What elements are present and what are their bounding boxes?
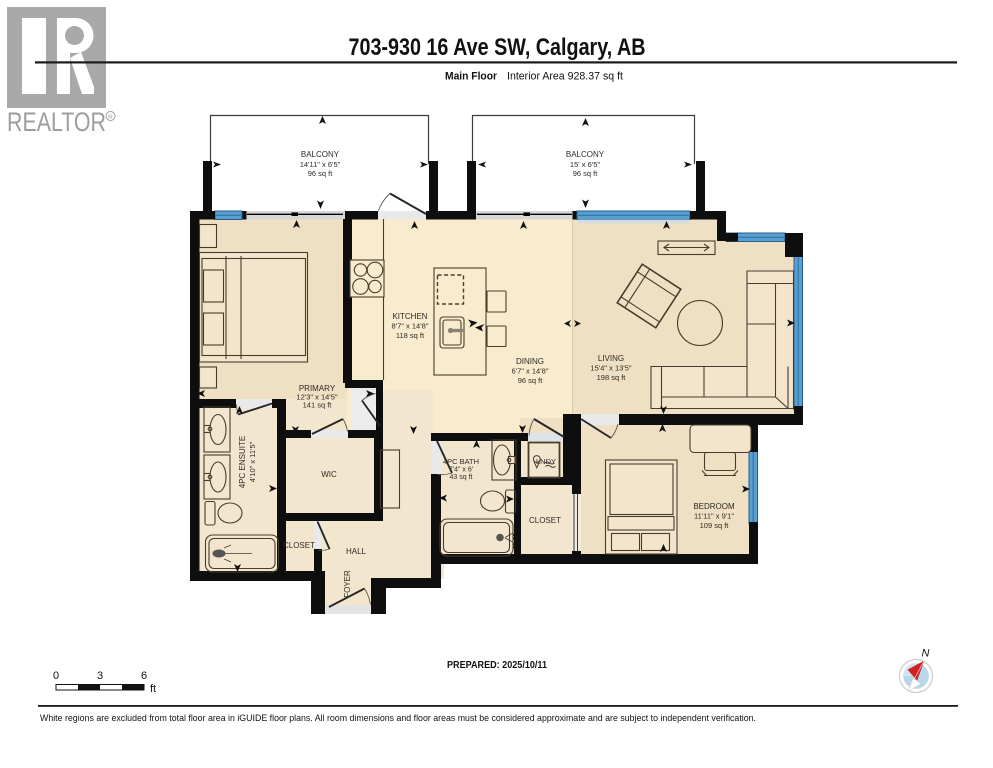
svg-text:198 sq ft: 198 sq ft	[597, 373, 627, 382]
svg-text:KITCHEN: KITCHEN	[392, 312, 427, 321]
svg-text:6: 6	[141, 670, 147, 682]
svg-text:WIC: WIC	[321, 470, 337, 479]
svg-text:15' x 6'5": 15' x 6'5"	[570, 160, 600, 169]
svg-text:4'10" x 11'5": 4'10" x 11'5"	[248, 441, 257, 482]
svg-text:REALTOR: REALTOR	[7, 107, 106, 137]
svg-text:ft: ft	[150, 683, 156, 695]
svg-text:Main Floor: Main Floor	[445, 71, 498, 83]
svg-text:96 sq ft: 96 sq ft	[518, 376, 544, 385]
svg-text:HALL: HALL	[346, 547, 367, 556]
svg-text:LIVING: LIVING	[598, 354, 624, 363]
svg-text:DINING: DINING	[516, 357, 544, 366]
svg-text:CLOSET: CLOSET	[283, 541, 315, 550]
svg-text:FOYER: FOYER	[343, 570, 352, 598]
svg-text:White regions are excluded fro: White regions are excluded from total fl…	[40, 713, 756, 724]
svg-text:BALCONY: BALCONY	[301, 150, 340, 159]
svg-text:703-930 16 Ave SW, Calgary, AB: 703-930 16 Ave SW, Calgary, AB	[349, 34, 646, 61]
svg-text:R: R	[108, 114, 113, 121]
svg-text:Interior Area 928.37 sq ft: Interior Area 928.37 sq ft	[507, 71, 623, 83]
svg-text:96 sq ft: 96 sq ft	[573, 169, 599, 178]
svg-text:109 sq ft: 109 sq ft	[700, 521, 730, 530]
svg-text:4PC BATH: 4PC BATH	[443, 457, 479, 466]
svg-text:15'4" x 13'5": 15'4" x 13'5"	[590, 364, 631, 373]
svg-text:4PC ENSUITE: 4PC ENSUITE	[238, 436, 247, 488]
svg-text:PREPARED: 2025/10/11: PREPARED: 2025/10/11	[447, 659, 547, 671]
svg-text:43 sq ft: 43 sq ft	[450, 474, 473, 481]
svg-text:7'4" x 6': 7'4" x 6'	[449, 467, 473, 474]
svg-text:96 sq ft: 96 sq ft	[308, 169, 334, 178]
svg-text:CLOSET: CLOSET	[529, 516, 561, 525]
svg-text:LNDY: LNDY	[536, 457, 556, 466]
svg-text:BALCONY: BALCONY	[566, 150, 605, 159]
svg-text:3: 3	[97, 670, 103, 682]
svg-text:11'11" x 9'1": 11'11" x 9'1"	[694, 512, 734, 521]
svg-text:118 sq ft: 118 sq ft	[396, 331, 425, 340]
svg-text:6'7" x 14'8": 6'7" x 14'8"	[512, 367, 549, 376]
svg-text:8'7" x 14'8": 8'7" x 14'8"	[392, 322, 429, 331]
svg-text:N: N	[922, 648, 930, 660]
svg-text:BEDROOM: BEDROOM	[693, 502, 735, 511]
svg-text:14'11" x 6'5": 14'11" x 6'5"	[300, 160, 341, 169]
svg-text:141 sq ft: 141 sq ft	[303, 401, 333, 410]
svg-text:0: 0	[53, 670, 59, 682]
